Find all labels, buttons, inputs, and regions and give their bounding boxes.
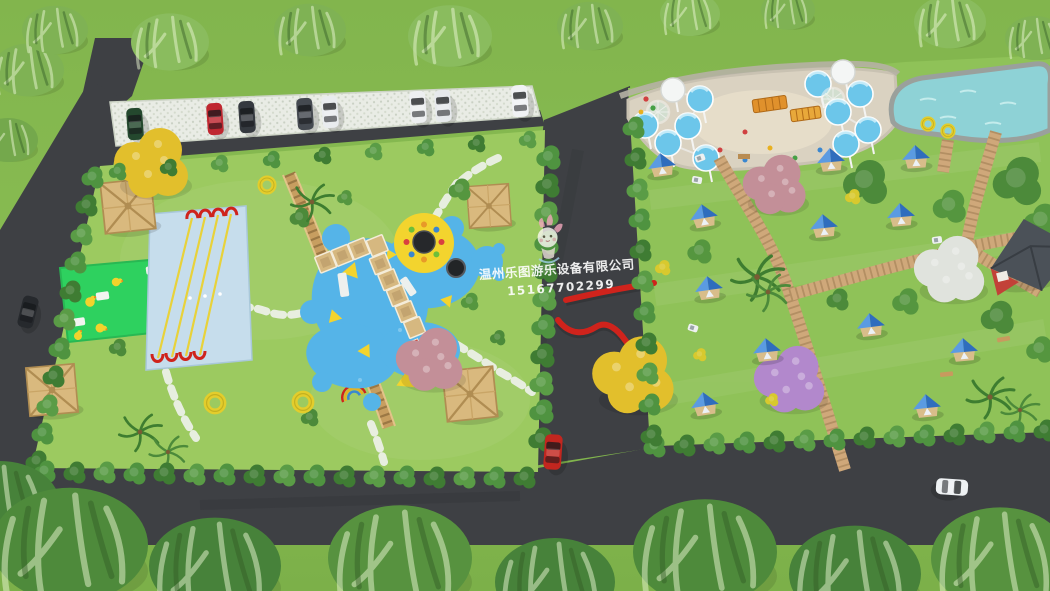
willow-tree — [408, 5, 492, 67]
scene-canvas: 温州乐图游乐设备有限公司 15167702299 — [0, 0, 1050, 591]
willow-tree — [274, 4, 346, 57]
willow-tree — [131, 13, 209, 70]
zipline-track — [146, 206, 252, 370]
willow-tree — [557, 2, 623, 50]
track-mark — [218, 292, 222, 296]
gazebo — [467, 183, 517, 233]
white-cart — [932, 236, 943, 244]
willow-tree — [22, 6, 88, 54]
picnic-table — [738, 154, 750, 159]
ground-trampoline — [447, 259, 465, 277]
track-mark — [203, 294, 207, 298]
aerial-park-render: 温州乐图游乐设备有限公司 15167702299 — [0, 0, 1050, 591]
track-mark — [188, 296, 192, 300]
